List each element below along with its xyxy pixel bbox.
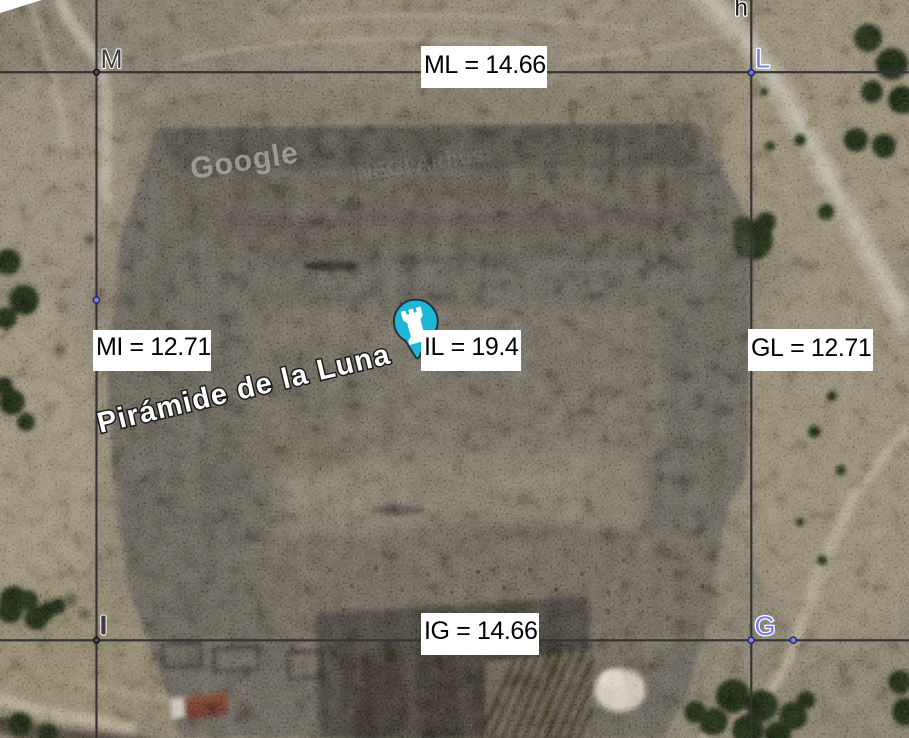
- svg-text:G: G: [755, 611, 776, 641]
- svg-text:h: h: [735, 0, 748, 22]
- svg-text:L: L: [755, 44, 770, 74]
- svg-text:M: M: [101, 44, 123, 74]
